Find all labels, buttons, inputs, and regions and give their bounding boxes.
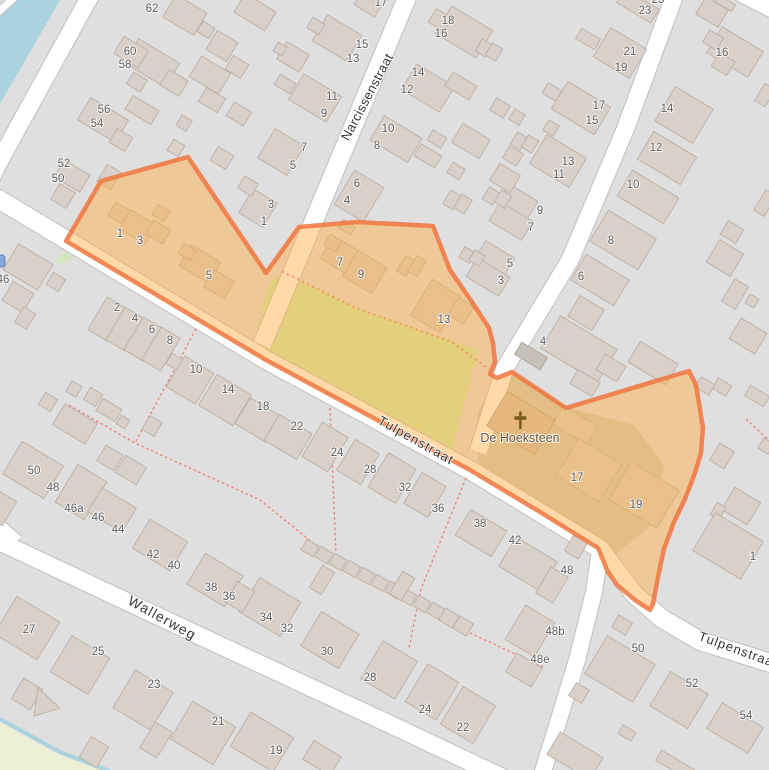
svg-text:34: 34: [260, 612, 273, 624]
svg-text:8: 8: [608, 235, 614, 247]
svg-text:42: 42: [147, 549, 160, 561]
svg-text:5: 5: [507, 258, 513, 270]
svg-text:24: 24: [331, 447, 344, 459]
svg-text:48b: 48b: [545, 626, 564, 638]
svg-text:46: 46: [92, 512, 105, 524]
svg-text:48: 48: [47, 482, 60, 494]
svg-text:38: 38: [205, 582, 218, 594]
svg-text:1: 1: [261, 216, 267, 228]
svg-text:16: 16: [435, 28, 448, 40]
svg-text:6: 6: [149, 324, 155, 336]
svg-text:25: 25: [92, 646, 105, 658]
svg-text:24: 24: [419, 704, 432, 716]
svg-text:52: 52: [58, 158, 71, 170]
svg-text:21: 21: [624, 46, 637, 58]
svg-text:60: 60: [124, 46, 137, 58]
svg-text:36: 36: [223, 591, 236, 603]
svg-text:9: 9: [321, 108, 327, 120]
svg-text:4: 4: [132, 313, 139, 325]
svg-text:40: 40: [168, 560, 181, 572]
svg-text:6: 6: [578, 271, 584, 283]
svg-text:25: 25: [652, 0, 665, 6]
svg-text:8: 8: [167, 335, 173, 347]
svg-text:48e: 48e: [530, 654, 549, 666]
svg-text:16: 16: [716, 47, 729, 59]
svg-text:52: 52: [686, 678, 699, 690]
svg-text:11: 11: [553, 169, 565, 181]
svg-text:32: 32: [399, 482, 412, 494]
svg-text:10: 10: [627, 179, 640, 191]
svg-text:56: 56: [98, 104, 111, 116]
svg-text:42: 42: [509, 535, 522, 547]
svg-text:11: 11: [326, 91, 338, 103]
svg-text:10: 10: [190, 364, 203, 376]
svg-text:18: 18: [442, 15, 455, 27]
svg-text:7: 7: [337, 257, 343, 269]
svg-text:50: 50: [52, 173, 65, 185]
svg-text:19: 19: [630, 499, 643, 511]
svg-text:14: 14: [412, 67, 425, 79]
svg-text:3: 3: [498, 275, 504, 287]
svg-text:22: 22: [457, 722, 470, 734]
svg-text:15: 15: [356, 39, 369, 51]
svg-text:13: 13: [347, 53, 360, 65]
svg-text:32: 32: [281, 623, 294, 635]
svg-text:4: 4: [540, 336, 547, 348]
svg-text:13: 13: [438, 314, 451, 326]
svg-text:30: 30: [321, 646, 334, 658]
svg-text:14: 14: [222, 384, 235, 396]
svg-text:1: 1: [750, 551, 756, 563]
svg-text:23: 23: [639, 5, 652, 17]
svg-text:38: 38: [474, 518, 487, 530]
svg-text:5: 5: [290, 160, 296, 172]
svg-text:19: 19: [615, 62, 628, 74]
svg-text:46: 46: [0, 274, 9, 286]
svg-text:2: 2: [114, 302, 120, 314]
svg-text:3: 3: [268, 199, 274, 211]
svg-text:9: 9: [358, 269, 364, 281]
svg-text:7: 7: [301, 142, 307, 154]
svg-text:14: 14: [661, 103, 674, 115]
svg-text:58: 58: [119, 59, 132, 71]
svg-text:13: 13: [562, 156, 575, 168]
svg-text:21: 21: [212, 716, 225, 728]
svg-text:12: 12: [650, 142, 663, 154]
svg-text:6: 6: [354, 178, 360, 190]
svg-text:44: 44: [112, 524, 125, 536]
svg-text:5: 5: [206, 270, 212, 282]
svg-text:54: 54: [91, 118, 104, 130]
svg-text:17: 17: [571, 472, 584, 484]
svg-text:De Hoeksteen: De Hoeksteen: [480, 431, 559, 445]
svg-text:15: 15: [586, 115, 599, 127]
svg-text:62: 62: [146, 3, 159, 15]
svg-text:27: 27: [23, 624, 36, 636]
svg-text:48: 48: [561, 565, 574, 577]
svg-text:10: 10: [382, 123, 395, 135]
svg-text:1: 1: [117, 228, 123, 240]
svg-text:19: 19: [270, 745, 283, 757]
svg-text:50: 50: [632, 643, 645, 655]
svg-text:3: 3: [137, 235, 143, 247]
svg-text:22: 22: [291, 421, 304, 433]
svg-text:28: 28: [364, 672, 377, 684]
svg-text:7: 7: [528, 222, 534, 234]
svg-text:36: 36: [432, 503, 445, 515]
svg-text:46a: 46a: [64, 503, 84, 515]
svg-text:17: 17: [375, 0, 388, 9]
svg-text:8: 8: [374, 140, 380, 152]
svg-text:23: 23: [148, 679, 161, 691]
svg-text:28: 28: [364, 464, 377, 476]
svg-text:54: 54: [740, 710, 753, 722]
svg-text:9: 9: [537, 205, 543, 217]
svg-text:4: 4: [344, 195, 351, 207]
svg-text:12: 12: [401, 84, 414, 96]
svg-text:17: 17: [593, 100, 606, 112]
svg-text:18: 18: [257, 401, 270, 413]
svg-text:50: 50: [28, 465, 41, 477]
